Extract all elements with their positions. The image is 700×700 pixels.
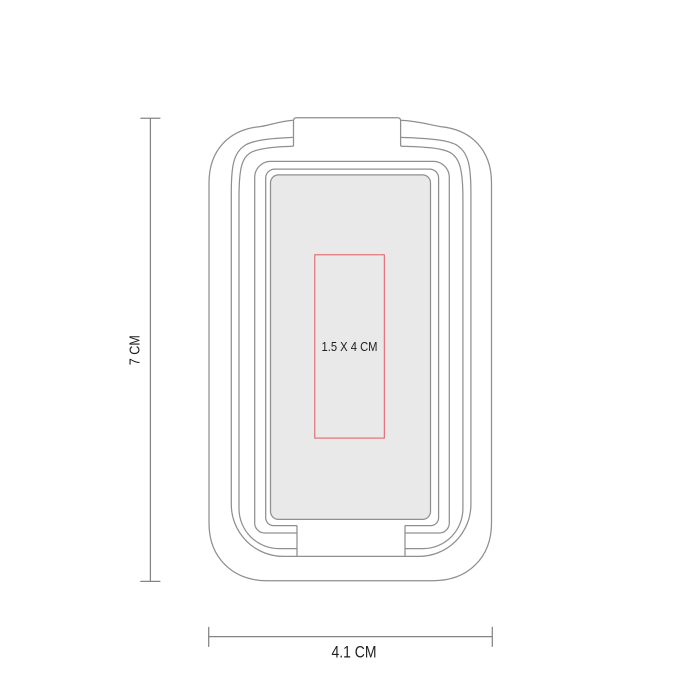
- svg-text:1.5 X 4 CM: 1.5 X 4 CM: [322, 340, 378, 354]
- svg-text:4.1 CM: 4.1 CM: [332, 643, 377, 662]
- svg-text:7 CM: 7 CM: [127, 335, 144, 365]
